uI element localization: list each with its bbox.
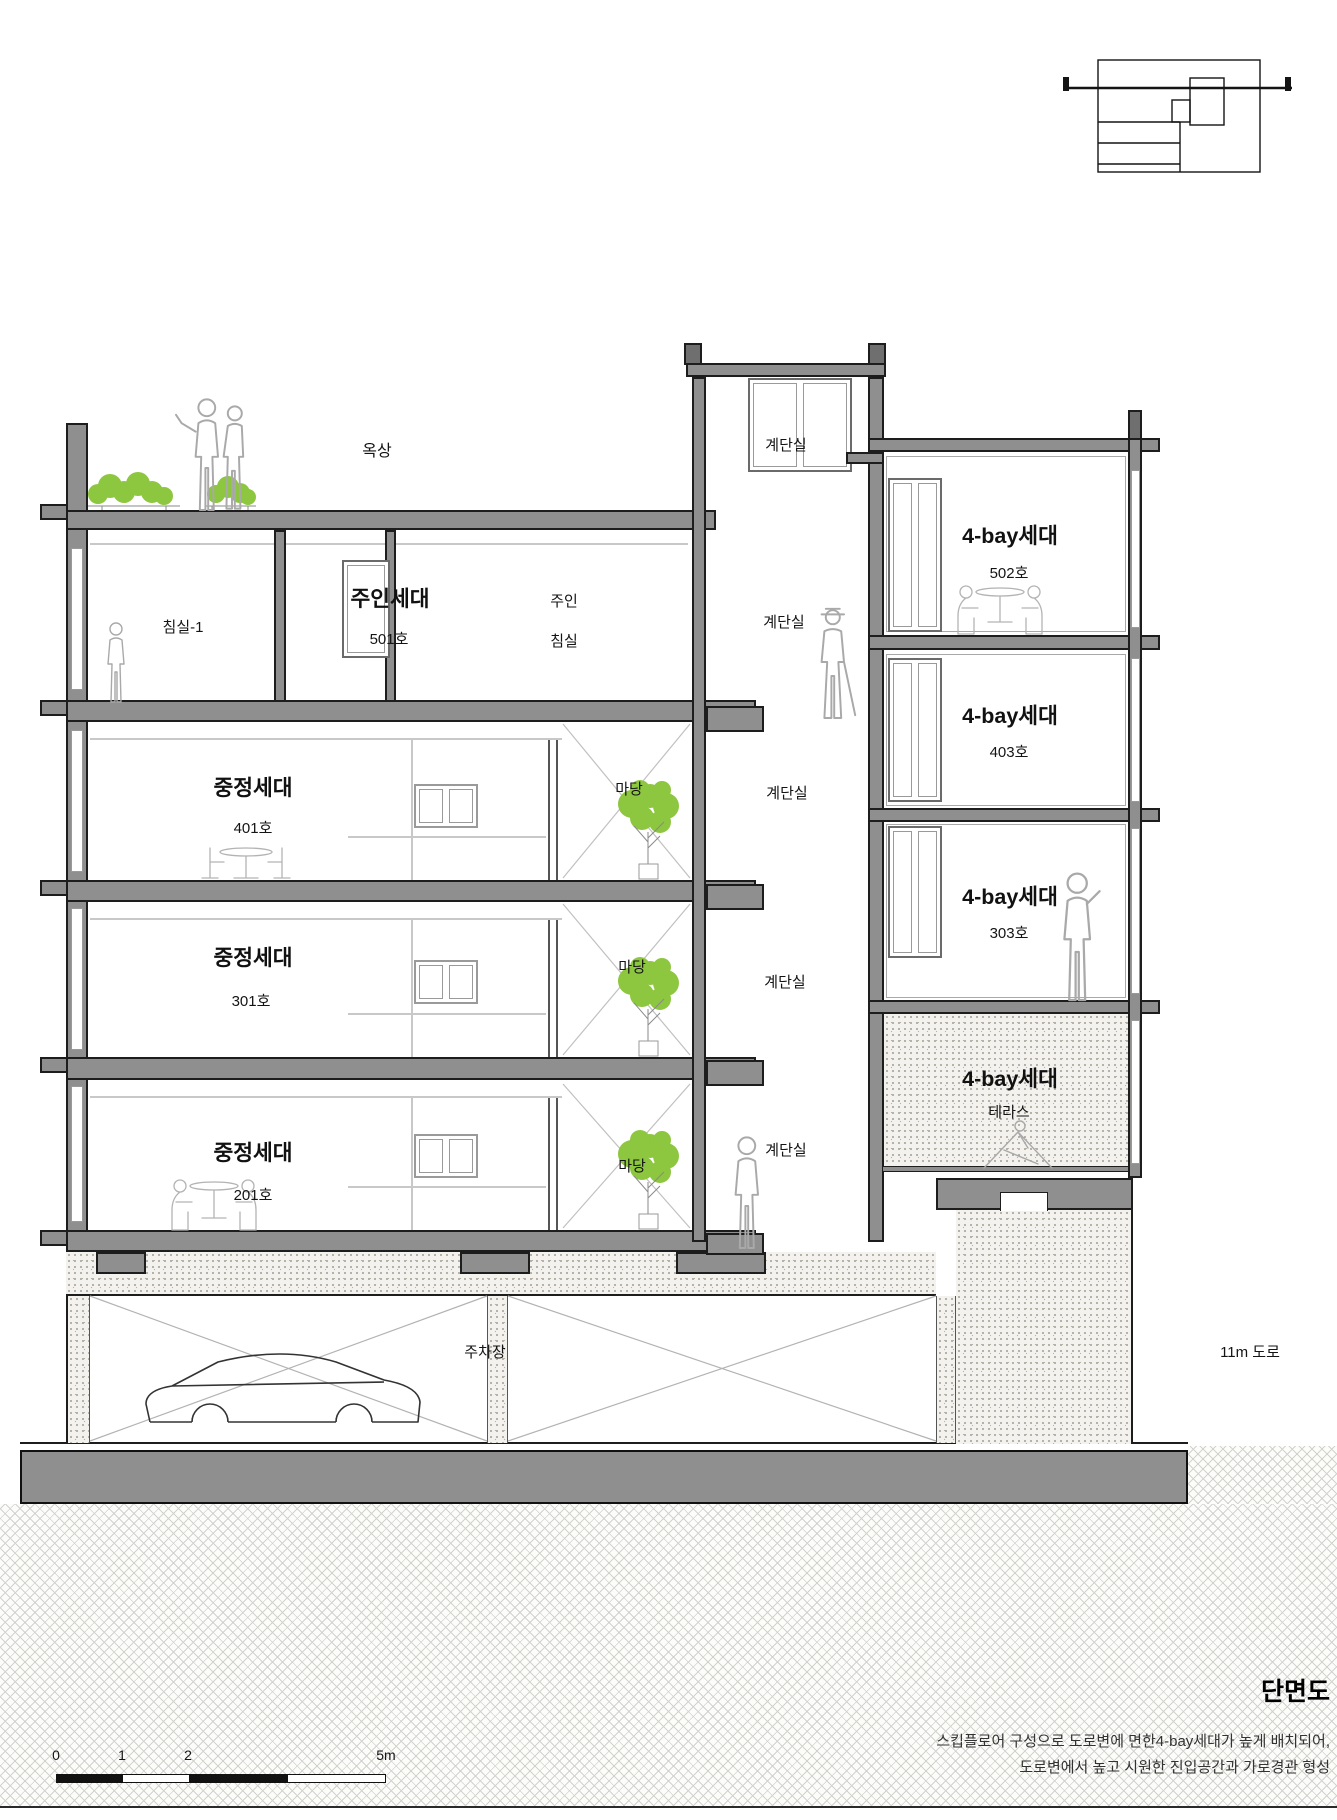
parking-label: 주차장	[464, 1345, 505, 1362]
terrace-label: 테라스	[988, 1105, 1029, 1122]
section-drawing-sheet: 옥상 침실-1 주인세대 501호 주인 침실 계단실 계단실 계단실 계단실 …	[0, 0, 1337, 1820]
fourbay-label-403: 4-bay세대	[962, 705, 1058, 729]
scale-tick-5m: 5m	[376, 1748, 395, 1763]
person-yoga-terrace	[984, 1121, 1052, 1168]
car-silhouette	[146, 1354, 420, 1422]
drawing-overlay	[0, 0, 1337, 1820]
table-set-401	[202, 848, 290, 878]
bedroom-label: 침실	[550, 634, 578, 651]
parking-bay-x	[90, 1296, 936, 1441]
scale-tick-1: 1	[118, 1748, 126, 1763]
unit-403-label: 403호	[990, 745, 1029, 762]
unit-301-label: 301호	[232, 994, 271, 1011]
bedroom1-label: 침실-1	[163, 620, 204, 637]
scale-bar-track	[56, 1774, 386, 1783]
courtyard-label-2f: 마당	[618, 1159, 646, 1176]
stair-label-2f: 계단실	[765, 1143, 806, 1160]
description-line-1: 스킵플로어 구성으로 도로변에 면한4-bay세대가 높게 배치되어,	[936, 1730, 1330, 1751]
courtyard-unit-label-3f: 중정세대	[213, 947, 292, 971]
key-plan	[1098, 60, 1260, 172]
scale-segment	[189, 1775, 288, 1782]
section-title: 단면도	[1261, 1672, 1330, 1708]
person-303	[1064, 874, 1099, 1000]
stair-label-4f: 계단실	[766, 786, 807, 803]
stair-label-3f: 계단실	[764, 975, 805, 992]
unit-401-label: 401호	[234, 821, 273, 838]
fourbay-label-terrace: 4-bay세대	[962, 1068, 1058, 1092]
fourbay-label-303: 4-bay세대	[962, 886, 1058, 910]
owner-label: 주인	[550, 594, 578, 611]
unit-201-label: 201호	[234, 1188, 273, 1205]
stair-label-tower: 계단실	[765, 438, 806, 455]
person-bedroom1	[108, 623, 124, 702]
courtyard-tree	[618, 1130, 679, 1229]
unit-501-label: 501호	[370, 632, 409, 649]
courtyard-unit-label-2f: 중정세대	[213, 1142, 292, 1166]
courtyard-unit-label-4f: 중정세대	[213, 777, 292, 801]
description-line-2: 도로변에서 높고 시원한 진입공간과 가로경관 형성	[1019, 1756, 1330, 1777]
stair-label-5f: 계단실	[763, 615, 804, 632]
person-stair-bottom	[736, 1137, 758, 1248]
scale-bar: 0 1 2 5m	[52, 1748, 392, 1794]
scale-segment	[57, 1775, 123, 1782]
road-label: 11m 도로	[1220, 1345, 1280, 1362]
unit-303-label: 303호	[990, 926, 1029, 943]
fourbay-label-502: 4-bay세대	[962, 525, 1058, 549]
courtyard-label-3f: 마당	[618, 960, 646, 977]
person-stair-hat	[822, 609, 856, 718]
scale-tick-0: 0	[52, 1748, 60, 1763]
roof-planting	[88, 472, 256, 510]
scale-tick-2: 2	[184, 1748, 192, 1763]
owner-unit-label: 주인세대	[350, 588, 429, 612]
unit-502-label: 502호	[990, 566, 1029, 583]
roof-label: 옥상	[362, 443, 391, 461]
couple-at-table-502	[958, 586, 1042, 634]
courtyard-label-4f: 마당	[615, 782, 643, 799]
